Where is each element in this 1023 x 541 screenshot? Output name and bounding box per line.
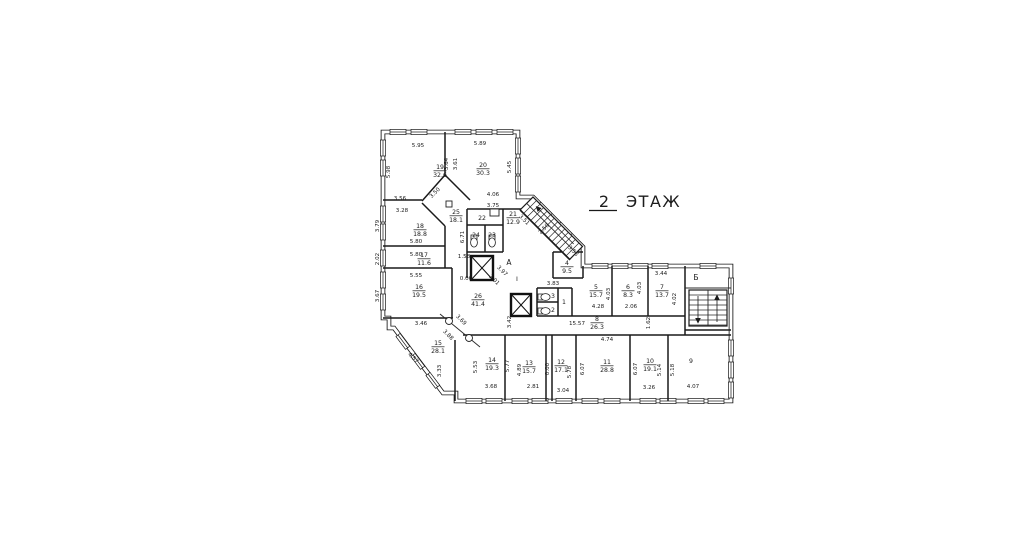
column-circle bbox=[466, 335, 473, 342]
stairwell-marker: I bbox=[516, 275, 518, 283]
dimension-label: 3.46 bbox=[415, 321, 428, 327]
elevator-shaft-2 bbox=[511, 294, 531, 316]
dimension-label: 6.07 bbox=[580, 362, 586, 375]
dimension-label: 4.89 bbox=[517, 363, 523, 376]
dimension-label: 3.75 bbox=[487, 203, 500, 209]
room-area: 17.1 bbox=[554, 367, 568, 374]
dimension-label: 3.26 bbox=[643, 385, 656, 391]
dimension-label: 5.77 bbox=[505, 359, 511, 372]
room-number: 26 bbox=[474, 293, 482, 300]
room-area: 11.6 bbox=[417, 260, 431, 267]
dimension-label: 3.04 bbox=[557, 388, 570, 394]
room-number: 6 bbox=[626, 284, 630, 291]
dimension-label: 4.03 bbox=[637, 281, 643, 294]
staircase-b bbox=[689, 290, 727, 326]
dimension-label: 3.79 bbox=[375, 219, 381, 232]
room-number: 2 bbox=[551, 307, 555, 314]
dimension-label: 5.18 bbox=[670, 363, 676, 376]
stairwell-marker: А bbox=[506, 258, 512, 267]
sink-icon bbox=[490, 209, 499, 216]
room-area: 8.3 bbox=[623, 292, 633, 299]
room-area: 9.5 bbox=[562, 268, 572, 275]
toilet-icon bbox=[538, 294, 550, 301]
dimension-label: 0.00 bbox=[460, 276, 473, 282]
dimension-label: 3.56 bbox=[394, 196, 407, 202]
dimension-label: 6.71 bbox=[460, 230, 466, 243]
room-number: 13 bbox=[525, 360, 533, 367]
dimension-label: 5.78 bbox=[567, 365, 573, 378]
dimension-label: 3.28 bbox=[396, 208, 409, 214]
room-area: 18.8 bbox=[413, 231, 427, 238]
room-number: 18 bbox=[416, 223, 424, 230]
dimension-label: 1.58 bbox=[458, 254, 471, 260]
room-area: 19.5 bbox=[412, 292, 426, 299]
dimension-label: 3.68 bbox=[485, 384, 498, 390]
dimension-label: 3.42 bbox=[507, 316, 513, 328]
dimension-label: 5.80 bbox=[410, 239, 423, 245]
dimension-label: 3.69 bbox=[454, 314, 467, 327]
dimension-label: 4.07 bbox=[687, 384, 700, 390]
room-area: 28.1 bbox=[431, 348, 445, 355]
column-circle bbox=[446, 318, 453, 325]
dimension-label: 3.61 bbox=[453, 157, 459, 170]
room-number: 3 bbox=[551, 293, 555, 300]
dimension-label: 5.98 bbox=[386, 165, 392, 178]
room-number: 5 bbox=[594, 284, 598, 291]
dimension-label: 5.45 bbox=[507, 160, 513, 173]
dimension-label: 4.06 bbox=[487, 192, 500, 198]
room-number: 15 bbox=[434, 340, 442, 347]
dimension-label: 3.67 bbox=[375, 289, 381, 302]
room-number: 14 bbox=[488, 357, 496, 364]
dimension-label: 6.07 bbox=[633, 362, 639, 375]
room-number: 8 bbox=[595, 316, 599, 323]
room-number: 24 bbox=[472, 232, 480, 239]
floor-word: ЭТАЖ bbox=[626, 192, 681, 211]
dimension-label: 4.28 bbox=[592, 304, 605, 310]
dimension-label: 15.57 bbox=[569, 321, 585, 327]
stairwell-marker: Б bbox=[693, 273, 698, 282]
dimension-label: 3.44 bbox=[655, 271, 668, 277]
dimension-label: 3.83 bbox=[547, 281, 560, 287]
dimension-label: 1.62 bbox=[646, 317, 652, 329]
room-area: 41.4 bbox=[471, 301, 485, 308]
room-area: 19.3 bbox=[485, 365, 499, 372]
room-area: 26.3 bbox=[590, 324, 604, 331]
room-number: 9 bbox=[689, 358, 693, 365]
room-area: 18.1 bbox=[449, 217, 463, 224]
room-area: 12.9 bbox=[506, 219, 520, 226]
room-number: 11 bbox=[603, 359, 611, 366]
dimension-label: 5.95 bbox=[412, 143, 425, 149]
column-square bbox=[446, 201, 452, 207]
dimension-label: 5.53 bbox=[473, 360, 479, 373]
room-number: 1 bbox=[562, 299, 566, 306]
dimension-label: 3.33 bbox=[437, 364, 443, 377]
floor-plan-page: 1932.62030.32518.12112.92224231818.81711… bbox=[0, 0, 1023, 541]
dimension-label: 5.14 bbox=[657, 363, 663, 376]
dimension-label: 3.50 bbox=[429, 186, 442, 199]
plan-title: 2 ЭТАЖ bbox=[589, 192, 681, 211]
room-number: 12 bbox=[557, 359, 565, 366]
dimension-label: 3.88 bbox=[441, 329, 454, 342]
dimension-label: 4.02 bbox=[672, 293, 678, 305]
floor-number: 2 bbox=[599, 192, 609, 211]
room-area: 32.6 bbox=[433, 172, 447, 179]
dimension-label: 2.06 bbox=[625, 304, 638, 310]
dimension-label: 5.89 bbox=[474, 141, 487, 147]
room-number: 19 bbox=[436, 164, 444, 171]
dimension-label: 2.02 bbox=[375, 253, 381, 265]
dimension-label: 2.81 bbox=[527, 384, 540, 390]
room-area: 15.7 bbox=[589, 292, 603, 299]
room-number: 16 bbox=[415, 284, 423, 291]
dimension-label: 4.03 bbox=[606, 287, 612, 300]
room-number: 22 bbox=[478, 215, 486, 222]
room-number: 10 bbox=[646, 358, 654, 365]
room-area: 30.3 bbox=[476, 170, 490, 177]
room-number: 23 bbox=[488, 232, 496, 239]
room-number: 21 bbox=[509, 211, 517, 218]
room-area: 15.7 bbox=[522, 368, 536, 375]
room-area: 13.7 bbox=[655, 292, 669, 299]
dimension-label: 4.74 bbox=[601, 337, 614, 343]
dimension-label: 5.55 bbox=[410, 273, 423, 279]
room-area: 28.8 bbox=[600, 367, 614, 374]
room-number: 7 bbox=[660, 284, 664, 291]
floor-plan-drawing: 1932.62030.32518.12112.92224231818.81711… bbox=[0, 0, 1023, 541]
room-number: 25 bbox=[452, 209, 460, 216]
room-number: 4 bbox=[565, 260, 569, 267]
room-number: 20 bbox=[479, 162, 487, 169]
dimension-label: 0.00 bbox=[545, 362, 551, 375]
toilet-icon bbox=[538, 308, 550, 315]
dimension-label: 5.80 bbox=[410, 252, 423, 258]
room-area: 19.1 bbox=[643, 366, 657, 373]
dimension-label: 3.64 bbox=[444, 157, 450, 170]
